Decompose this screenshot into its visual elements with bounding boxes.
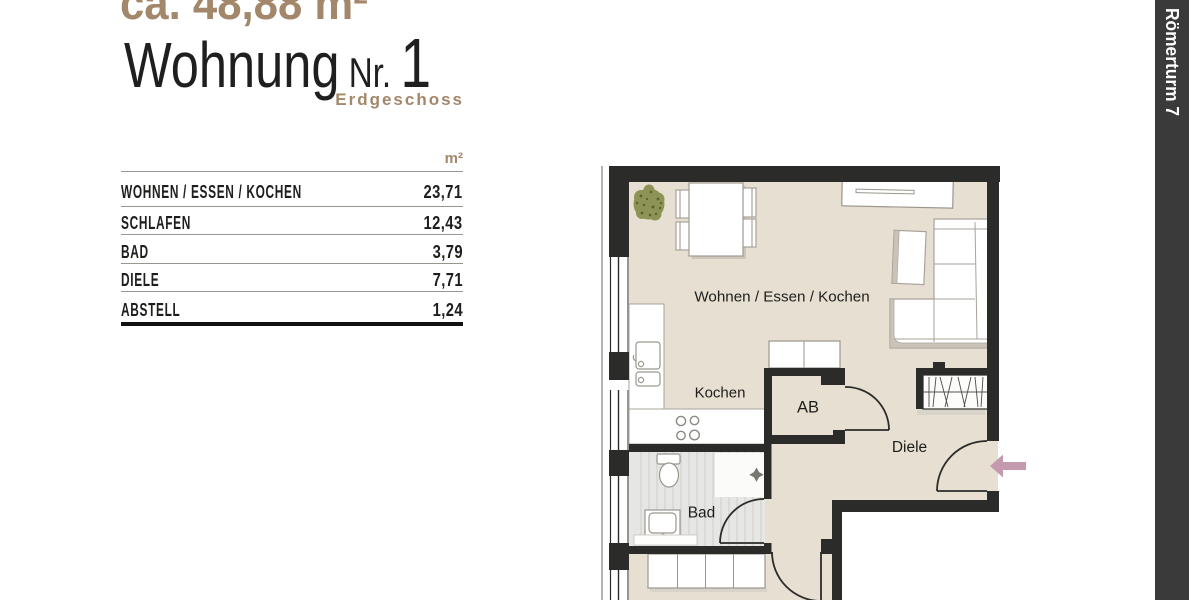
svg-text:Bad: Bad [688, 505, 716, 522]
svg-text:Diele: Diele [892, 439, 927, 456]
svg-text:AB: AB [797, 399, 819, 417]
svg-text:Römerturm 7: Römerturm 7 [1162, 8, 1183, 116]
svg-text:Kochen: Kochen [695, 385, 746, 402]
svg-text:Wohnen / Essen / Kochen: Wohnen / Essen / Kochen [694, 289, 869, 306]
